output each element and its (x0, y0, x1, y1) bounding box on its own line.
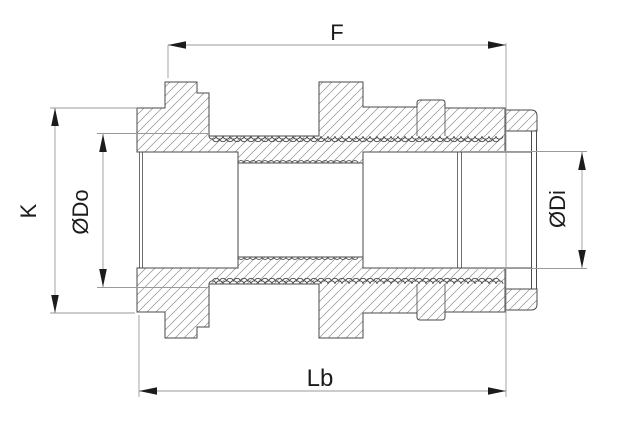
upper-body-section (137, 82, 505, 163)
label-lb: Lb (307, 365, 334, 392)
dimension-di: ØDi (464, 152, 587, 269)
label-k: K (16, 203, 41, 218)
arrow-f-right (488, 41, 506, 49)
part-body-sections (137, 82, 537, 338)
arrow-lb-right (488, 387, 506, 395)
arrow-k-top (51, 108, 59, 126)
right-cap-lower (506, 289, 537, 310)
arrow-lb-left (139, 387, 157, 395)
label-f: F (330, 20, 343, 45)
arrow-f-left (168, 41, 186, 49)
dimension-f: F (168, 20, 506, 397)
arrow-do-bottom (99, 269, 107, 287)
label-do: ØDo (68, 189, 93, 234)
arrow-di-top (578, 152, 586, 170)
right-cap-upper (506, 110, 537, 131)
coupling-section-svg: F K ØDo ØDi Lb (0, 0, 630, 429)
arrow-do-top (99, 134, 107, 152)
arrow-k-bottom (51, 295, 59, 313)
label-di: ØDi (545, 190, 570, 228)
technical-drawing: F K ØDo ØDi Lb (0, 0, 630, 429)
lower-body-section (137, 257, 505, 338)
dimension-do: ØDo (68, 134, 210, 288)
arrow-di-bottom (578, 250, 586, 268)
